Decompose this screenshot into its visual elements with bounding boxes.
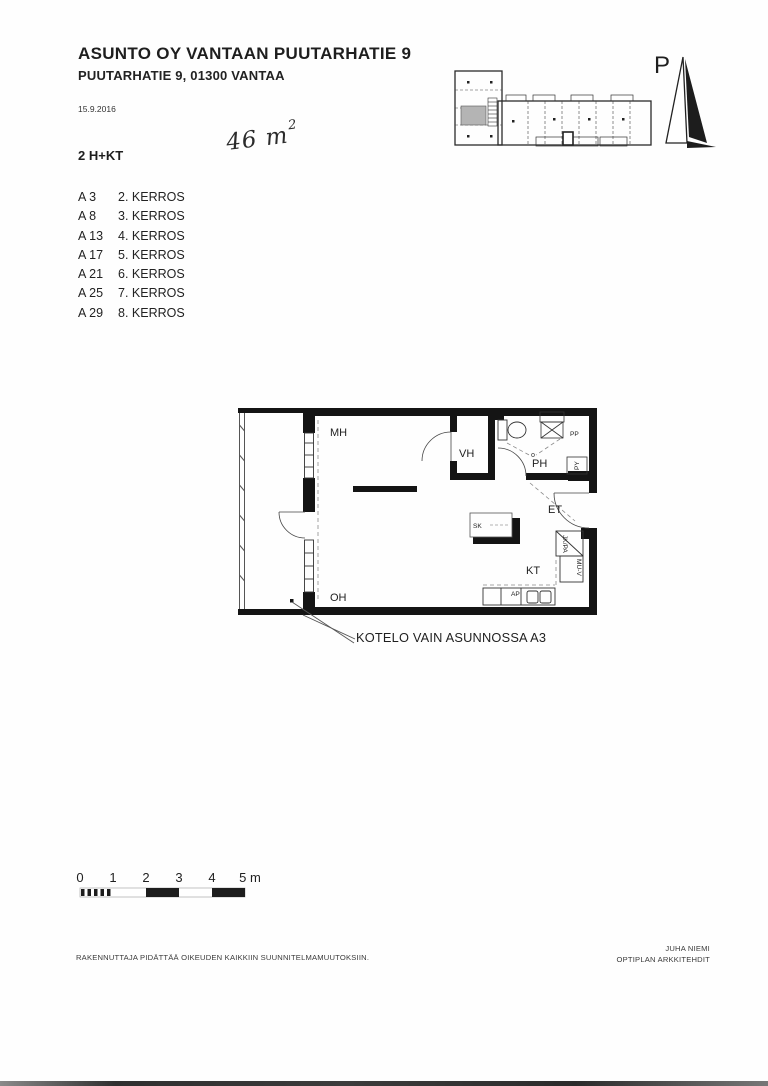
floor-label: 3. KERROS — [118, 207, 185, 226]
scale-tick-label: 0 — [76, 870, 83, 885]
apartment-row: A 257. KERROS — [78, 284, 185, 303]
fixture-label-jkpa: JK/PA — [561, 535, 568, 553]
floor-label: 5. KERROS — [118, 246, 185, 265]
footer-architect: JUHA NIEMI OPTIPLAN ARKKITEHDIT — [560, 944, 710, 965]
apartment-row: A 83. KERROS — [78, 207, 185, 226]
unit-number: A 13 — [78, 227, 118, 246]
room-label-vh: VH — [459, 448, 474, 460]
apartment-list: A 32. KERROS A 83. KERROS A 134. KERROS … — [78, 188, 185, 323]
scale-tick-label: 3 — [175, 870, 182, 885]
walls — [238, 408, 597, 615]
site-key-plan — [448, 58, 658, 153]
scale-bar: 0 1 2 3 4 5 m — [68, 866, 263, 908]
door-swings — [279, 432, 589, 538]
scale-tick-label: 1 — [109, 870, 116, 885]
floor-label: 7. KERROS — [118, 284, 185, 303]
floor-plan: MH VH PH ET KT OH SK PP PY JK/PA MU-V AP — [230, 395, 605, 650]
unit-number: A 3 — [78, 188, 118, 207]
handwritten-area: 46 m2 — [225, 121, 299, 156]
scale-tick-label: 2 — [142, 870, 149, 885]
highlighted-unit — [461, 106, 486, 125]
room-label-et: ET — [548, 504, 562, 516]
plan-dot — [290, 599, 294, 603]
apartment-row: A 134. KERROS — [78, 227, 185, 246]
floor-label: 6. KERROS — [118, 265, 185, 284]
unit-number: A 29 — [78, 304, 118, 323]
unit-number: A 8 — [78, 207, 118, 226]
page-subtitle: PUUTARHATIE 9, 01300 VANTAA — [78, 68, 285, 83]
north-arrow-fill — [685, 59, 707, 143]
unit-number: A 25 — [78, 284, 118, 303]
room-label-sk: SK — [473, 523, 482, 530]
site-plan-stairs — [488, 98, 497, 126]
fixture-label-muv: MU-V — [575, 559, 582, 576]
scale-tick-label: 5 m — [239, 870, 261, 885]
room-label-mh: MH — [330, 427, 347, 439]
handwritten-area-value: 46 m — [225, 123, 290, 156]
sink-basin — [527, 591, 538, 603]
architect-name: JUHA NIEMI — [560, 944, 710, 955]
room-label-kt: KT — [526, 565, 540, 577]
north-arrow-label: P — [654, 52, 670, 79]
sink-basin — [540, 591, 551, 603]
apartment-row: A 216. KERROS — [78, 265, 185, 284]
floor-label: 2. KERROS — [118, 188, 185, 207]
toilet — [498, 420, 526, 440]
architect-firm: OPTIPLAN ARKKITEHDIT — [560, 955, 710, 966]
north-arrow-base — [687, 141, 716, 148]
floor-label: 4. KERROS — [118, 227, 185, 246]
room-label-oh: OH — [330, 592, 347, 604]
unit-number: A 17 — [78, 246, 118, 265]
floor-label: 8. KERROS — [118, 304, 185, 323]
fixture-label-ap: AP — [511, 591, 520, 598]
room-label-ph: PH — [532, 458, 547, 470]
windows — [305, 433, 314, 592]
unit-number: A 21 — [78, 265, 118, 284]
scanned-floorplan-page: ASUNTO OY VANTAAN PUUTARHATIE 9 PUUTARHA… — [0, 0, 768, 1086]
fixture-label-pp: PP — [570, 431, 579, 438]
balcony-railing — [240, 412, 245, 609]
apartment-row: A 32. KERROS — [78, 188, 185, 207]
fixture-label-py: PY — [574, 461, 581, 470]
plan-note: KOTELO VAIN ASUNNOSSA A3 — [356, 630, 546, 645]
date-label: 15.9.2016 — [78, 104, 116, 114]
footer-disclaimer: RAKENNUTTAJA PIDÄTTÄÄ OIKEUDEN KAIKKIIN … — [76, 953, 369, 962]
handwritten-area-sup: 2 — [287, 118, 298, 134]
scale-bar-labels: 0 1 2 3 4 5 m — [76, 870, 260, 885]
site-plan-shaft — [563, 132, 573, 145]
floor-drain — [532, 454, 535, 457]
scale-tick-label: 4 — [208, 870, 215, 885]
scan-edge-artifact — [0, 1081, 768, 1086]
page-title: ASUNTO OY VANTAAN PUUTARHATIE 9 — [78, 44, 411, 64]
apartment-type-label: 2 H+KT — [78, 148, 123, 163]
apartment-row: A 298. KERROS — [78, 304, 185, 323]
apartment-row: A 175. KERROS — [78, 246, 185, 265]
north-arrow: P — [650, 45, 720, 155]
